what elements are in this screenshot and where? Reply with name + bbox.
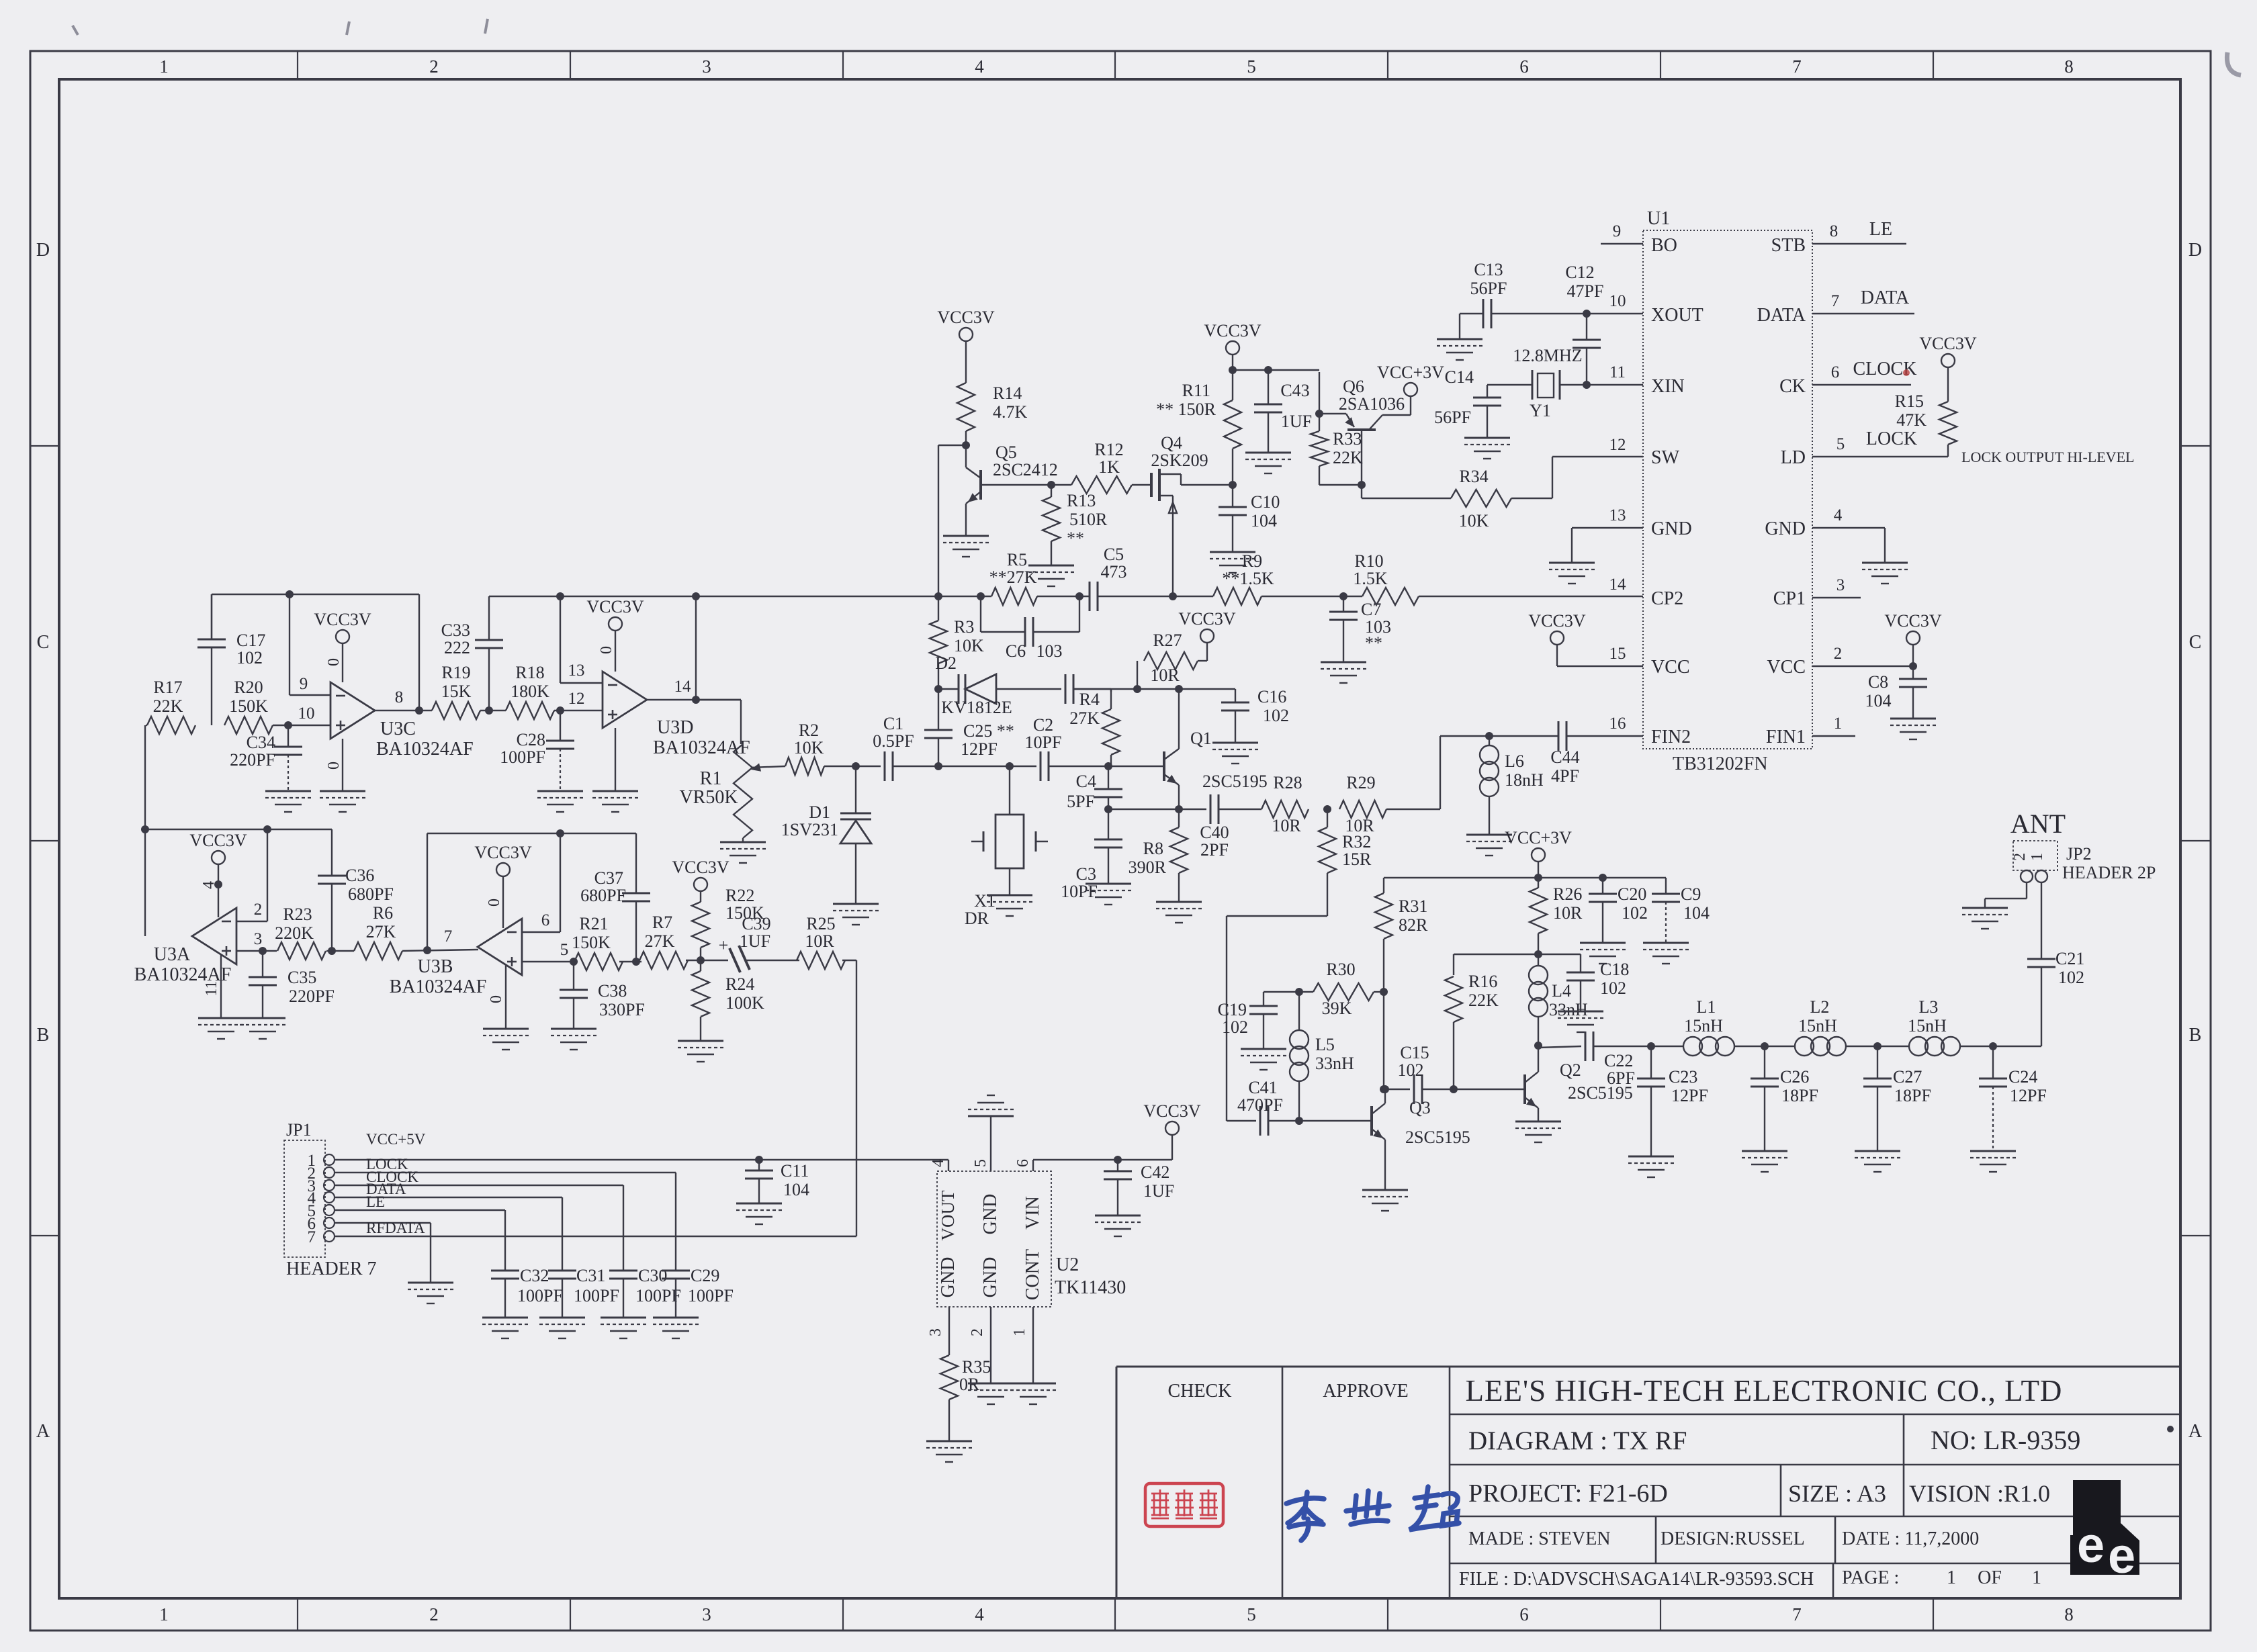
svg-text:R10: R10	[1354, 551, 1383, 571]
svg-text:C10: C10	[1251, 492, 1280, 512]
svg-text:2SK209: 2SK209	[1151, 451, 1208, 470]
svg-text:102: 102	[1622, 903, 1648, 923]
svg-text:7: 7	[1792, 56, 1802, 77]
svg-text:100PF: 100PF	[635, 1286, 681, 1305]
svg-text:4: 4	[975, 56, 984, 77]
svg-text:3: 3	[254, 930, 263, 948]
svg-text:4.7K: 4.7K	[993, 402, 1028, 422]
svg-text:R7: R7	[652, 913, 672, 932]
svg-text:R5: R5	[1007, 550, 1027, 569]
svg-text:R25: R25	[806, 914, 835, 933]
svg-text:GND: GND	[938, 1257, 959, 1298]
svg-text:PROJECT: F21-6D: PROJECT: F21-6D	[1468, 1479, 1668, 1508]
svg-text:R18: R18	[515, 663, 544, 682]
svg-text:15nH: 15nH	[1908, 1016, 1947, 1036]
svg-text:1: 1	[1947, 1567, 1956, 1588]
svg-text:C42: C42	[1141, 1162, 1169, 1182]
svg-text:LOCK: LOCK	[1866, 428, 1917, 449]
svg-text:1.5K: 1.5K	[1353, 569, 1388, 588]
svg-text:3: 3	[702, 1604, 711, 1624]
svg-text:0: 0	[325, 658, 343, 666]
svg-text:U3C: U3C	[380, 719, 416, 739]
svg-text:VCC+3V: VCC+3V	[1505, 828, 1572, 847]
svg-text:**: **	[1067, 529, 1084, 548]
svg-text:C12: C12	[1565, 263, 1594, 282]
svg-text:102: 102	[2058, 968, 2084, 987]
svg-text:7: 7	[1831, 292, 1840, 310]
svg-text:22K: 22K	[1333, 448, 1363, 467]
svg-text:473: 473	[1101, 562, 1127, 582]
svg-text:LOCK OUTPUT HI-LEVEL: LOCK OUTPUT HI-LEVEL	[1961, 449, 2134, 465]
svg-text:39K: 39K	[1322, 999, 1352, 1018]
svg-text:9: 9	[300, 675, 308, 693]
svg-text:R6: R6	[373, 903, 393, 923]
svg-text:9: 9	[1613, 222, 1622, 240]
svg-text:LE: LE	[366, 1193, 385, 1210]
svg-text:5: 5	[1247, 56, 1256, 77]
svg-text:R9: R9	[1242, 551, 1262, 571]
svg-text:13: 13	[568, 661, 585, 680]
svg-text:C24: C24	[2008, 1067, 2037, 1087]
svg-text:1K: 1K	[1098, 457, 1120, 477]
svg-text:C21: C21	[2055, 949, 2084, 968]
svg-text:180K: 180K	[511, 682, 549, 701]
svg-text:CP2: CP2	[1651, 588, 1683, 609]
svg-text:2SC5195: 2SC5195	[1405, 1128, 1470, 1147]
svg-text:7: 7	[308, 1228, 316, 1246]
svg-text:R17: R17	[153, 678, 182, 697]
svg-text:6: 6	[1014, 1159, 1032, 1167]
svg-text:MADE : STEVEN: MADE : STEVEN	[1468, 1528, 1611, 1549]
svg-text:102: 102	[1600, 978, 1626, 998]
svg-text:CLOCK: CLOCK	[1853, 359, 1917, 379]
svg-text:10K: 10K	[794, 738, 824, 758]
svg-text:C4: C4	[1076, 772, 1096, 791]
svg-text:R3: R3	[954, 617, 974, 637]
svg-text:47K: 47K	[1896, 410, 1927, 430]
svg-text:27K: 27K	[366, 922, 396, 942]
svg-text:Y1: Y1	[1530, 401, 1551, 420]
svg-text:102: 102	[1398, 1060, 1424, 1080]
svg-text:R15: R15	[1895, 392, 1924, 411]
svg-text:222: 222	[444, 638, 470, 657]
svg-text:R24: R24	[725, 974, 754, 994]
svg-text:33nH: 33nH	[1549, 1000, 1588, 1019]
svg-text:C19: C19	[1218, 1000, 1247, 1019]
svg-text:14: 14	[674, 678, 692, 696]
svg-text:C14: C14	[1445, 367, 1474, 387]
svg-text:R30: R30	[1326, 960, 1355, 979]
svg-text:5: 5	[1836, 435, 1845, 453]
svg-text:U3D: U3D	[657, 717, 693, 738]
svg-text:100K: 100K	[725, 993, 764, 1013]
svg-text:L6: L6	[1505, 751, 1524, 771]
svg-text:14: 14	[1609, 576, 1627, 594]
svg-text:11: 11	[203, 980, 220, 996]
svg-text:22K: 22K	[153, 696, 183, 716]
svg-text:220PF: 220PF	[289, 986, 335, 1006]
svg-text:C25 **: C25 **	[963, 721, 1014, 741]
svg-text:U3B: U3B	[418, 956, 453, 977]
svg-text:VCC3V: VCC3V	[1919, 334, 1976, 353]
svg-text:10: 10	[298, 704, 315, 723]
svg-text:104: 104	[783, 1180, 809, 1199]
svg-text:D2: D2	[935, 653, 957, 673]
svg-text:VCC3V: VCC3V	[937, 308, 994, 327]
svg-text:C18: C18	[1600, 960, 1629, 979]
svg-text:5: 5	[560, 941, 569, 959]
svg-text:A: A	[36, 1421, 50, 1442]
svg-text:18PF: 18PF	[1894, 1086, 1931, 1105]
svg-text:C43: C43	[1280, 381, 1309, 400]
svg-text:Q2: Q2	[1560, 1060, 1581, 1080]
svg-text:L4: L4	[1552, 981, 1571, 1001]
svg-text:2: 2	[969, 1328, 986, 1336]
svg-text:R12: R12	[1094, 440, 1123, 459]
svg-text:1: 1	[1011, 1328, 1028, 1336]
svg-text:1UF: 1UF	[740, 931, 770, 951]
svg-text:VCC3V: VCC3V	[1178, 609, 1235, 629]
svg-text:1: 1	[2029, 853, 2046, 861]
svg-text:1: 1	[1834, 715, 1843, 733]
svg-text:** 150R: ** 150R	[1156, 400, 1216, 419]
svg-text:C39: C39	[742, 914, 770, 933]
svg-text:NO: LR-9359: NO: LR-9359	[1931, 1425, 2080, 1455]
svg-text:100PF: 100PF	[688, 1286, 734, 1305]
svg-text:5: 5	[972, 1159, 989, 1167]
svg-text:102: 102	[1263, 706, 1289, 725]
svg-text:10R: 10R	[1272, 816, 1301, 835]
svg-text:U2: U2	[1056, 1254, 1079, 1275]
svg-text:R35: R35	[962, 1357, 991, 1377]
svg-text:15: 15	[1609, 645, 1626, 663]
svg-text:82R: 82R	[1399, 915, 1428, 935]
svg-text:C2: C2	[1033, 715, 1053, 735]
svg-text:7: 7	[444, 927, 453, 946]
svg-text:HEADER 7: HEADER 7	[286, 1258, 377, 1279]
svg-text:10K: 10K	[1459, 511, 1489, 531]
svg-text:R32: R32	[1342, 832, 1371, 852]
svg-text:10K: 10K	[954, 636, 984, 655]
svg-text:10R: 10R	[805, 931, 834, 951]
svg-text:C26: C26	[1780, 1067, 1809, 1087]
svg-text:C35: C35	[287, 968, 316, 987]
svg-text:R19: R19	[441, 663, 470, 682]
svg-text:DATA: DATA	[1757, 305, 1806, 326]
svg-text:DR: DR	[965, 909, 989, 928]
svg-text:0: 0	[325, 762, 343, 770]
svg-text:C: C	[37, 632, 50, 653]
svg-text:680PF: 680PF	[580, 886, 626, 905]
svg-text:1: 1	[159, 56, 169, 77]
svg-text:R33: R33	[1333, 429, 1362, 449]
svg-text:220PF: 220PF	[230, 750, 275, 770]
svg-text:VCC3V: VCC3V	[1204, 321, 1261, 340]
svg-text:3: 3	[702, 56, 711, 77]
svg-text:GND: GND	[1651, 518, 1692, 539]
svg-text:R8: R8	[1143, 839, 1163, 858]
svg-text:C37: C37	[594, 868, 623, 888]
svg-text:LEE'S HIGH-TECH ELECTRONIC CO.: LEE'S HIGH-TECH ELECTRONIC CO., LTD	[1466, 1374, 2063, 1408]
svg-text:DESIGN:RUSSEL: DESIGN:RUSSEL	[1661, 1528, 1805, 1549]
svg-text:FIN1: FIN1	[1766, 727, 1806, 747]
svg-text:C22: C22	[1604, 1051, 1633, 1070]
svg-text:B: B	[37, 1025, 50, 1046]
svg-text:L1: L1	[1697, 997, 1716, 1017]
svg-text:C31: C31	[576, 1266, 605, 1285]
svg-text:C20: C20	[1618, 884, 1646, 904]
svg-text:100PF: 100PF	[574, 1286, 619, 1305]
svg-text:2SC5195: 2SC5195	[1202, 772, 1268, 791]
svg-text:1: 1	[159, 1604, 169, 1624]
svg-text:C30: C30	[638, 1266, 667, 1285]
svg-text:470PF: 470PF	[1237, 1095, 1283, 1115]
svg-text:L2: L2	[1810, 997, 1830, 1017]
svg-text:27K: 27K	[645, 931, 675, 951]
svg-text:C8: C8	[1868, 672, 1888, 692]
svg-text:4: 4	[975, 1604, 984, 1624]
svg-text:D1: D1	[809, 802, 830, 822]
svg-text:VISION :R1.0: VISION :R1.0	[1909, 1480, 2050, 1507]
svg-text:15K: 15K	[441, 682, 472, 701]
svg-text:100PF: 100PF	[517, 1286, 563, 1305]
svg-text:L5: L5	[1315, 1035, 1335, 1054]
svg-text:4PF: 4PF	[1551, 766, 1579, 786]
svg-text:680PF: 680PF	[348, 884, 394, 904]
svg-text:18nH: 18nH	[1505, 770, 1544, 790]
svg-text:R20: R20	[234, 678, 263, 697]
svg-text:C33: C33	[441, 621, 470, 640]
svg-text:13: 13	[1609, 506, 1626, 524]
svg-text:10PF: 10PF	[1025, 733, 1062, 752]
svg-text:R28: R28	[1273, 773, 1302, 792]
svg-text:8: 8	[395, 688, 404, 706]
svg-text:**27K: **27K	[989, 567, 1037, 587]
svg-text:R27: R27	[1153, 631, 1182, 650]
svg-text:27K: 27K	[1069, 708, 1100, 728]
svg-text:LE: LE	[1869, 219, 1892, 240]
svg-text:e: e	[2077, 1517, 2105, 1573]
svg-text:STB: STB	[1771, 235, 1806, 256]
svg-text:VCC3V: VCC3V	[1143, 1101, 1200, 1121]
svg-text:R4: R4	[1079, 690, 1100, 709]
svg-text:TB31202FN: TB31202FN	[1673, 753, 1768, 774]
svg-text:220K: 220K	[275, 923, 314, 943]
svg-text:C5: C5	[1104, 545, 1124, 564]
svg-text:6: 6	[1519, 1604, 1529, 1624]
svg-text:4: 4	[930, 1159, 947, 1167]
svg-text:VCC3V: VCC3V	[474, 843, 531, 862]
svg-text:C36: C36	[345, 866, 374, 885]
svg-text:102: 102	[236, 648, 263, 668]
svg-text:C3: C3	[1076, 864, 1096, 884]
svg-text:12.8MHZ: 12.8MHZ	[1513, 346, 1582, 365]
svg-text:1UF: 1UF	[1281, 412, 1312, 431]
svg-text:C44: C44	[1550, 747, 1579, 767]
svg-text:C: C	[2189, 632, 2202, 653]
svg-text:1SV231: 1SV231	[781, 820, 838, 839]
svg-text:15R: 15R	[1342, 850, 1372, 869]
svg-text:VCC3V: VCC3V	[189, 831, 247, 850]
svg-text:GND: GND	[980, 1194, 1001, 1235]
svg-text:L3: L3	[1919, 997, 1939, 1017]
svg-text:102: 102	[1222, 1017, 1248, 1037]
svg-text:15nH: 15nH	[1798, 1016, 1837, 1036]
svg-text:510R: 510R	[1069, 510, 1108, 529]
svg-text:C15: C15	[1400, 1043, 1429, 1062]
svg-text:104: 104	[1865, 691, 1892, 710]
svg-text:R21: R21	[579, 914, 608, 933]
svg-text:BA10324AF: BA10324AF	[390, 976, 487, 997]
svg-text:C28: C28	[517, 730, 545, 749]
svg-text:0: 0	[598, 646, 615, 654]
svg-text:VCC+3V: VCC+3V	[1377, 363, 1444, 382]
svg-text:C40: C40	[1200, 823, 1229, 842]
svg-text:103: 103	[1036, 641, 1063, 661]
svg-text:DIAGRAM : TX RF: DIAGRAM : TX RF	[1468, 1426, 1687, 1455]
svg-text:KV1812E: KV1812E	[941, 698, 1012, 717]
svg-text:33nH: 33nH	[1315, 1054, 1354, 1073]
svg-text:CP1: CP1	[1773, 588, 1806, 609]
svg-text:R16: R16	[1468, 972, 1497, 991]
svg-text:C13: C13	[1474, 260, 1503, 279]
svg-text:VR50K: VR50K	[679, 787, 738, 808]
svg-text:10: 10	[1609, 292, 1626, 310]
svg-text:GND: GND	[1765, 518, 1806, 539]
svg-text:8: 8	[2064, 56, 2074, 77]
svg-text:X1: X1	[974, 891, 995, 911]
svg-text:150K: 150K	[229, 696, 268, 716]
svg-text:**: **	[1365, 633, 1382, 653]
svg-text:6PF: 6PF	[1607, 1068, 1635, 1088]
svg-text:6: 6	[1519, 56, 1529, 77]
svg-text:47PF: 47PF	[1567, 281, 1604, 301]
svg-text:C29: C29	[691, 1266, 719, 1285]
svg-text:0: 0	[488, 995, 505, 1003]
svg-text:8: 8	[1830, 222, 1839, 240]
svg-text:18PF: 18PF	[1781, 1086, 1818, 1105]
svg-text:2: 2	[1834, 645, 1843, 663]
svg-text:**1.5K: **1.5K	[1222, 569, 1274, 588]
svg-text:C41: C41	[1248, 1078, 1277, 1097]
svg-text:R1: R1	[700, 768, 722, 789]
svg-text:VOUT: VOUT	[938, 1190, 958, 1240]
svg-text:Q6: Q6	[1343, 377, 1364, 396]
svg-text:100PF: 100PF	[500, 747, 545, 767]
svg-text:C1: C1	[883, 714, 903, 733]
svg-text:56PF: 56PF	[1470, 279, 1507, 298]
svg-text:56PF: 56PF	[1434, 408, 1471, 427]
svg-text:2: 2	[254, 901, 263, 919]
svg-text:TK11430: TK11430	[1055, 1277, 1126, 1298]
svg-text:1: 1	[2032, 1567, 2041, 1588]
svg-text:12: 12	[568, 690, 585, 708]
svg-text:C32: C32	[520, 1266, 549, 1285]
svg-text:Q3: Q3	[1409, 1098, 1431, 1117]
svg-text:C9: C9	[1681, 884, 1701, 904]
svg-text:RFDATA: RFDATA	[366, 1220, 425, 1236]
svg-text:PAGE :: PAGE :	[1842, 1567, 1899, 1588]
svg-text:HEADER 2P: HEADER 2P	[2062, 863, 2156, 882]
svg-text:R29: R29	[1346, 773, 1375, 792]
svg-text:2SA1036: 2SA1036	[1339, 394, 1405, 414]
svg-text:3: 3	[927, 1328, 944, 1336]
svg-text:11: 11	[1609, 363, 1626, 381]
svg-text:B: B	[2189, 1025, 2202, 1046]
svg-text:U3A: U3A	[154, 944, 191, 965]
svg-text:390R: 390R	[1128, 858, 1167, 877]
svg-text:0: 0	[486, 899, 503, 907]
svg-text:12PF: 12PF	[1671, 1086, 1708, 1105]
svg-text:6: 6	[541, 911, 550, 929]
svg-text:2: 2	[429, 1604, 439, 1624]
svg-text:12: 12	[1609, 436, 1626, 454]
svg-text:BO: BO	[1651, 235, 1677, 256]
svg-text:VCC: VCC	[1651, 657, 1690, 678]
svg-text:1UF: 1UF	[1143, 1181, 1174, 1201]
svg-text:SIZE : A3: SIZE : A3	[1788, 1480, 1886, 1507]
svg-text:CONT: CONT	[1022, 1249, 1043, 1300]
svg-text:VCC3V: VCC3V	[314, 610, 371, 629]
svg-text:104: 104	[1683, 903, 1710, 923]
svg-text:C6: C6	[1006, 641, 1026, 661]
svg-text:FILE : D:\ADVSCH\SAGA14\LR-935: FILE : D:\ADVSCH\SAGA14\LR-93593.SCH	[1459, 1569, 1814, 1590]
svg-text:2: 2	[2011, 853, 2029, 861]
svg-text:R34: R34	[1459, 467, 1488, 486]
svg-text:16: 16	[1609, 715, 1626, 733]
svg-text:Q4: Q4	[1161, 433, 1182, 453]
svg-text:CHECK: CHECK	[1168, 1381, 1232, 1402]
svg-text:D: D	[36, 240, 50, 261]
svg-text:R11: R11	[1182, 381, 1210, 400]
svg-text:XIN: XIN	[1651, 376, 1685, 397]
svg-text:5: 5	[1247, 1604, 1256, 1624]
svg-text:XOUT: XOUT	[1651, 305, 1703, 326]
svg-text:R31: R31	[1399, 897, 1427, 916]
svg-text:Q5: Q5	[995, 443, 1017, 462]
svg-text:A: A	[2188, 1421, 2203, 1442]
svg-text:12PF: 12PF	[961, 739, 998, 759]
svg-text:FIN2: FIN2	[1651, 727, 1691, 747]
svg-text:VCC+5V: VCC+5V	[366, 1131, 426, 1148]
svg-text:BA10324AF: BA10324AF	[376, 739, 474, 760]
svg-text:4: 4	[200, 881, 218, 889]
svg-text:3: 3	[1836, 576, 1845, 594]
svg-text:C11: C11	[781, 1161, 809, 1181]
svg-text:22K: 22K	[1468, 991, 1499, 1010]
svg-text:C38: C38	[598, 981, 627, 1001]
svg-text:R2: R2	[799, 721, 819, 740]
svg-text:2: 2	[429, 56, 439, 77]
svg-text:DATE : 11,7,2000: DATE : 11,7,2000	[1842, 1528, 1979, 1549]
svg-text:D: D	[2188, 240, 2202, 261]
svg-text:VCC3V: VCC3V	[672, 858, 729, 877]
svg-text:2PF: 2PF	[1200, 840, 1229, 860]
svg-text:C27: C27	[1893, 1067, 1922, 1087]
svg-text:SW: SW	[1651, 447, 1680, 468]
svg-text:BA10324AF: BA10324AF	[653, 737, 750, 758]
svg-text:e: e	[2108, 1528, 2135, 1584]
svg-text:JP2: JP2	[2066, 844, 2092, 864]
svg-text:VCC3V: VCC3V	[586, 597, 644, 616]
svg-text:C23: C23	[1669, 1067, 1697, 1087]
svg-text:CK: CK	[1779, 376, 1806, 397]
svg-text:330PF: 330PF	[599, 1000, 645, 1019]
svg-text:APPROVE: APPROVE	[1323, 1381, 1409, 1402]
svg-text:15nH: 15nH	[1684, 1016, 1723, 1036]
svg-text:R13: R13	[1067, 491, 1096, 510]
svg-text:GND: GND	[980, 1257, 1001, 1298]
